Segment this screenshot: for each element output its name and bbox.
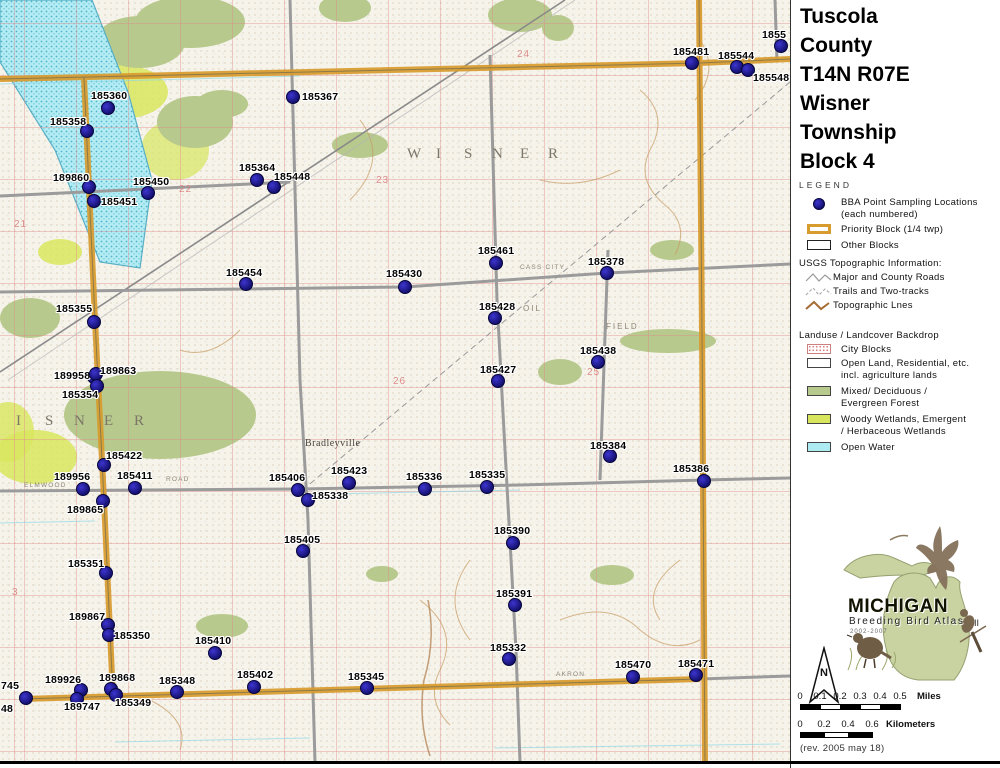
legend-open-label: Open Land, Residential, etc. — [841, 358, 969, 369]
bba-point-label: 189926 — [45, 674, 81, 686]
road-name-label: ELMWOOD — [24, 482, 67, 489]
bba-point-label: 185405 — [284, 534, 320, 546]
other-blocks-swatch — [807, 240, 831, 250]
scale-bar-segment — [880, 704, 901, 710]
township-name-top: I — [436, 146, 441, 163]
bba-point-label: 185450 — [133, 176, 169, 188]
bba-point-dot — [239, 277, 253, 291]
bba-point-label: 185406 — [269, 472, 305, 484]
bba-point-label: 185411 — [117, 470, 153, 482]
logo-subtitle: Breeding Bird Atlas — [849, 616, 964, 627]
bba-point-label: 185360 — [91, 90, 127, 102]
bba-point-label: 185451 — [101, 196, 137, 208]
bba-point-dot — [600, 266, 614, 280]
scale-tick-label: 0 — [797, 691, 802, 702]
bba-point-label: 185402 — [237, 669, 273, 681]
bba-point-label: 185410 — [195, 635, 231, 647]
bba-point-dot — [250, 173, 264, 187]
township-name-left: E — [104, 413, 113, 430]
township-name-left: N — [74, 413, 85, 430]
priority-block-swatch — [807, 224, 831, 234]
title-line: T14N R07E — [800, 60, 910, 89]
scale-bar-segment — [824, 732, 849, 738]
section-number: 24 — [517, 49, 530, 60]
township-name-top: R — [548, 146, 558, 163]
open-water-swatch — [807, 442, 831, 452]
city-blocks-swatch — [807, 344, 831, 354]
bba-point-dot — [141, 186, 155, 200]
bba-point-label: 189867 — [69, 611, 105, 623]
bba-point-dot — [480, 480, 494, 494]
major-roads-icon — [805, 271, 833, 284]
bba-point-dot — [360, 681, 374, 695]
section-number: 23 — [376, 175, 389, 186]
bba-point-dot — [491, 374, 505, 388]
bba-point-label: 189747 — [64, 701, 100, 713]
logo-accent-mark — [890, 536, 908, 541]
bba-point-label: 185427 — [480, 364, 516, 376]
scale-tick-label: 0.4 — [841, 719, 854, 730]
town-name-label: Bradleyville — [305, 438, 360, 449]
bba-point-dot — [626, 670, 640, 684]
bba-point-dot — [502, 652, 516, 666]
bba-point-label: 185335 — [469, 469, 505, 481]
logo-name: MICHIGAN — [848, 596, 948, 618]
feature-label: FIELD — [606, 322, 639, 331]
legend-bba-label2: (each numbered) — [841, 209, 918, 220]
bba-point-dot — [697, 474, 711, 488]
revision-note: (rev. 2005 may 18) — [800, 743, 884, 754]
usgs-heading: USGS Topographic Information: — [799, 258, 942, 269]
bba-point-dot — [418, 482, 432, 496]
legend-water-label: Open Water — [841, 442, 895, 453]
township-name-left: S — [45, 413, 53, 430]
bba-point-label: 185471 — [678, 658, 714, 670]
bba-point-label: 185423 — [331, 465, 367, 477]
legend-forest-label: Mixed/ Deciduous / — [841, 386, 927, 397]
bba-point-label: 185461 — [478, 245, 514, 257]
section-number: 22 — [179, 184, 192, 195]
title-line: Wisner — [800, 89, 910, 118]
bba-point-dot — [19, 691, 33, 705]
bba-point-label: 185332 — [490, 642, 526, 654]
scale-bar-segment — [800, 732, 825, 738]
bba-point-label: 185481 — [673, 46, 709, 58]
bba-point-dot — [689, 668, 703, 682]
bba-point-label: 185470 — [615, 659, 651, 671]
topo-lines-icon — [805, 299, 833, 312]
trails-icon — [805, 285, 833, 298]
legend-topo-label: Topographic Lnes — [833, 300, 913, 311]
legend-heading: LEGEND — [799, 180, 852, 190]
bba-point-label: 185448 — [274, 171, 310, 183]
landuse-heading: Landuse / Landcover Backdrop — [799, 330, 939, 341]
bba-point-label: 185430 — [386, 268, 422, 280]
legend-trails-label: Trails and Two-tracks — [833, 286, 929, 297]
scale-tick-label: 0.5 — [893, 691, 906, 702]
bba-point-label: 185350 — [114, 630, 150, 642]
bba-point-label: 185345 — [348, 671, 384, 683]
bba-point-label: 185391 — [496, 588, 532, 600]
bba-point-label: 185349 — [115, 697, 151, 709]
bba-point-label: 185338 — [312, 490, 348, 502]
bba-point-dot — [128, 481, 142, 495]
bba-point-label: 185367 — [302, 91, 338, 103]
bba-point-dot — [87, 315, 101, 329]
bba-point-label: 185428 — [479, 301, 515, 313]
bba-point-label: 185454 — [226, 267, 262, 279]
bba-point-dot — [101, 101, 115, 115]
section-number: 26 — [393, 376, 406, 387]
topographic-map[interactable]: 2122232425263ELMWOODROADCASS CITYAKRONOI… — [0, 0, 790, 762]
bba-point-dot — [489, 256, 503, 270]
forest-swatch — [807, 386, 831, 396]
bba-point-label: 185351 — [68, 558, 104, 570]
bba-point-dot — [286, 90, 300, 104]
township-name-left: I — [16, 413, 21, 430]
michigan-bba-logo: MICHIGAN Breeding Bird Atlas 2002-2007 I… — [838, 526, 998, 691]
bba-point-label: 185358 — [50, 116, 86, 128]
bba-point-dot — [247, 680, 261, 694]
scale-bar-segment — [848, 732, 873, 738]
township-name-top: S — [464, 146, 472, 163]
bba-point-label: 745 — [1, 680, 19, 692]
road-name-label: AKRON — [556, 671, 585, 678]
bba-point-label: 185355 — [56, 303, 92, 315]
township-name-left: R — [134, 413, 144, 430]
legend-city-label: City Blocks — [841, 344, 891, 355]
bba-point-label: 185384 — [590, 440, 626, 452]
legend-open-label2: incl. agriculture lands — [841, 370, 937, 381]
logo-years: 2002-2007 — [850, 629, 888, 635]
scale-bar-segment — [860, 704, 881, 710]
scale-unit-label: Kilometers — [886, 719, 935, 730]
township-name-top: N — [492, 146, 503, 163]
bba-point-label: 185422 — [106, 450, 142, 462]
logo-numeral: II — [974, 618, 979, 628]
road-name-label: ROAD — [166, 476, 190, 483]
bba-point-dot — [87, 194, 101, 208]
township-name-top: E — [520, 146, 529, 163]
scale-bar-segment — [800, 704, 821, 710]
bba-point-label: 189865 — [67, 504, 103, 516]
township-name-top: W — [407, 146, 421, 163]
legend-forest-label2: Evergreen Forest — [841, 398, 919, 409]
feature-label: OIL — [523, 304, 542, 313]
bba-point-dot — [506, 536, 520, 550]
bba-point-dot — [398, 280, 412, 294]
bba-point-label: 189956 — [54, 471, 90, 483]
section-number: 3 — [12, 587, 19, 598]
bba-point-label: 185386 — [673, 463, 709, 475]
bba-point-label: 48 — [1, 703, 13, 715]
map-sheet: 2122232425263ELMWOODROADCASS CITYAKRONOI… — [0, 0, 1000, 768]
wetland-swatch — [807, 414, 831, 424]
scale-tick-label: 0.2 — [817, 719, 830, 730]
bba-point-dot — [591, 355, 605, 369]
bba-point-label: 185390 — [494, 525, 530, 537]
scale-bar-segment — [820, 704, 841, 710]
legend-wetland-label: Woody Wetlands, Emergent — [841, 414, 966, 425]
bba-point-label: 189863 — [100, 365, 136, 377]
road-name-label: CASS CITY — [520, 264, 565, 271]
bba-point-dot — [774, 39, 788, 53]
scale-bar-segment — [840, 704, 861, 710]
legend-bba-label: BBA Point Sampling Locations — [841, 197, 978, 208]
legend-bba-row: BBA Point Sampling Locations (each numbe… — [799, 197, 999, 221]
north-label: N — [820, 667, 828, 679]
bba-point-dot — [76, 482, 90, 496]
bba-point-label: 189860 — [53, 172, 89, 184]
bba-point-dot — [170, 685, 184, 699]
scale-tick-label: 0.1 — [813, 691, 826, 702]
open-land-swatch — [807, 358, 831, 368]
bba-point-dot — [508, 598, 522, 612]
bba-point-label: 185378 — [588, 256, 624, 268]
map-title: Tuscola County T14N R07E Wisner Township… — [800, 2, 910, 176]
bottom-border — [0, 761, 1000, 764]
bba-point-dot — [296, 544, 310, 558]
title-line: Township — [800, 118, 910, 147]
bba-point-label: 1855 — [762, 29, 786, 41]
bba-point-label: 185364 — [239, 162, 275, 174]
bba-point-label: 185548 — [753, 72, 789, 84]
scale-tick-label: 0.6 — [865, 719, 878, 730]
bba-point-dot — [685, 56, 699, 70]
title-line: Block 4 — [800, 147, 910, 176]
bba-point-label: 185438 — [580, 345, 616, 357]
title-line: Tuscola — [800, 2, 910, 31]
bba-point-label: 189868 — [99, 672, 135, 684]
scale-tick-label: 0.2 — [833, 691, 846, 702]
bba-point-label: 185354 — [62, 389, 98, 401]
scale-tick-label: 0.3 — [853, 691, 866, 702]
bba-point-label: 189958 — [54, 370, 90, 382]
legend-wetland-label2: / Herbaceous Wetlands — [841, 426, 946, 437]
bba-point-label: 185336 — [406, 471, 442, 483]
bba-point-dot — [488, 311, 502, 325]
section-number: 21 — [14, 219, 27, 230]
scale-unit-label: Miles — [917, 691, 941, 702]
scale-tick-label: 0 — [797, 719, 802, 730]
bba-point-icon — [813, 198, 825, 210]
bba-point-dot — [342, 476, 356, 490]
legend-priority-label: Priority Block (1/4 twp) — [841, 224, 943, 235]
bba-point-label: 185348 — [159, 675, 195, 687]
scale-tick-label: 0.4 — [873, 691, 886, 702]
legend-other-label: Other Blocks — [841, 240, 899, 251]
bba-point-dot — [208, 646, 222, 660]
legend-roads-label: Major and County Roads — [833, 272, 945, 283]
title-line: County — [800, 31, 910, 60]
bba-point-label: 185544 — [718, 50, 754, 62]
